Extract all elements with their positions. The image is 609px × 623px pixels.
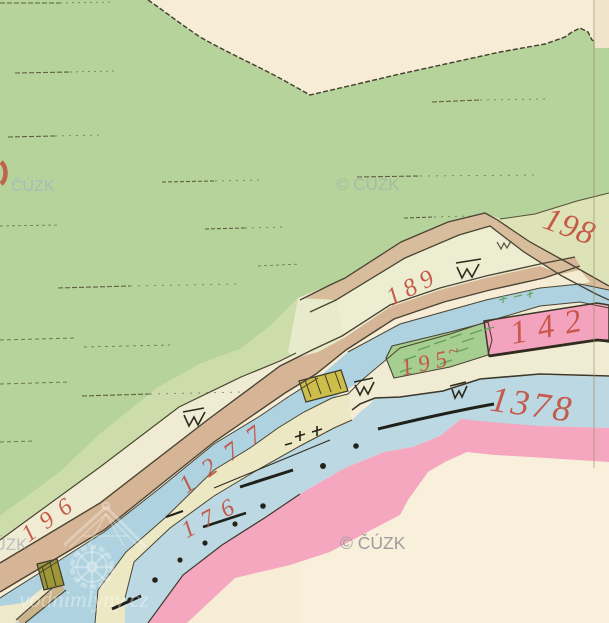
svg-text:© ČÚZK: © ČÚZK — [340, 532, 406, 553]
svg-text:vodnimlyny.cz: vodnimlyny.cz — [19, 587, 149, 612]
svg-text:© ČÚZK: © ČÚZK — [336, 175, 400, 194]
svg-text:ČÚZK: ČÚZK — [11, 176, 55, 195]
svg-text:© ČÚZK: © ČÚZK — [0, 535, 28, 554]
